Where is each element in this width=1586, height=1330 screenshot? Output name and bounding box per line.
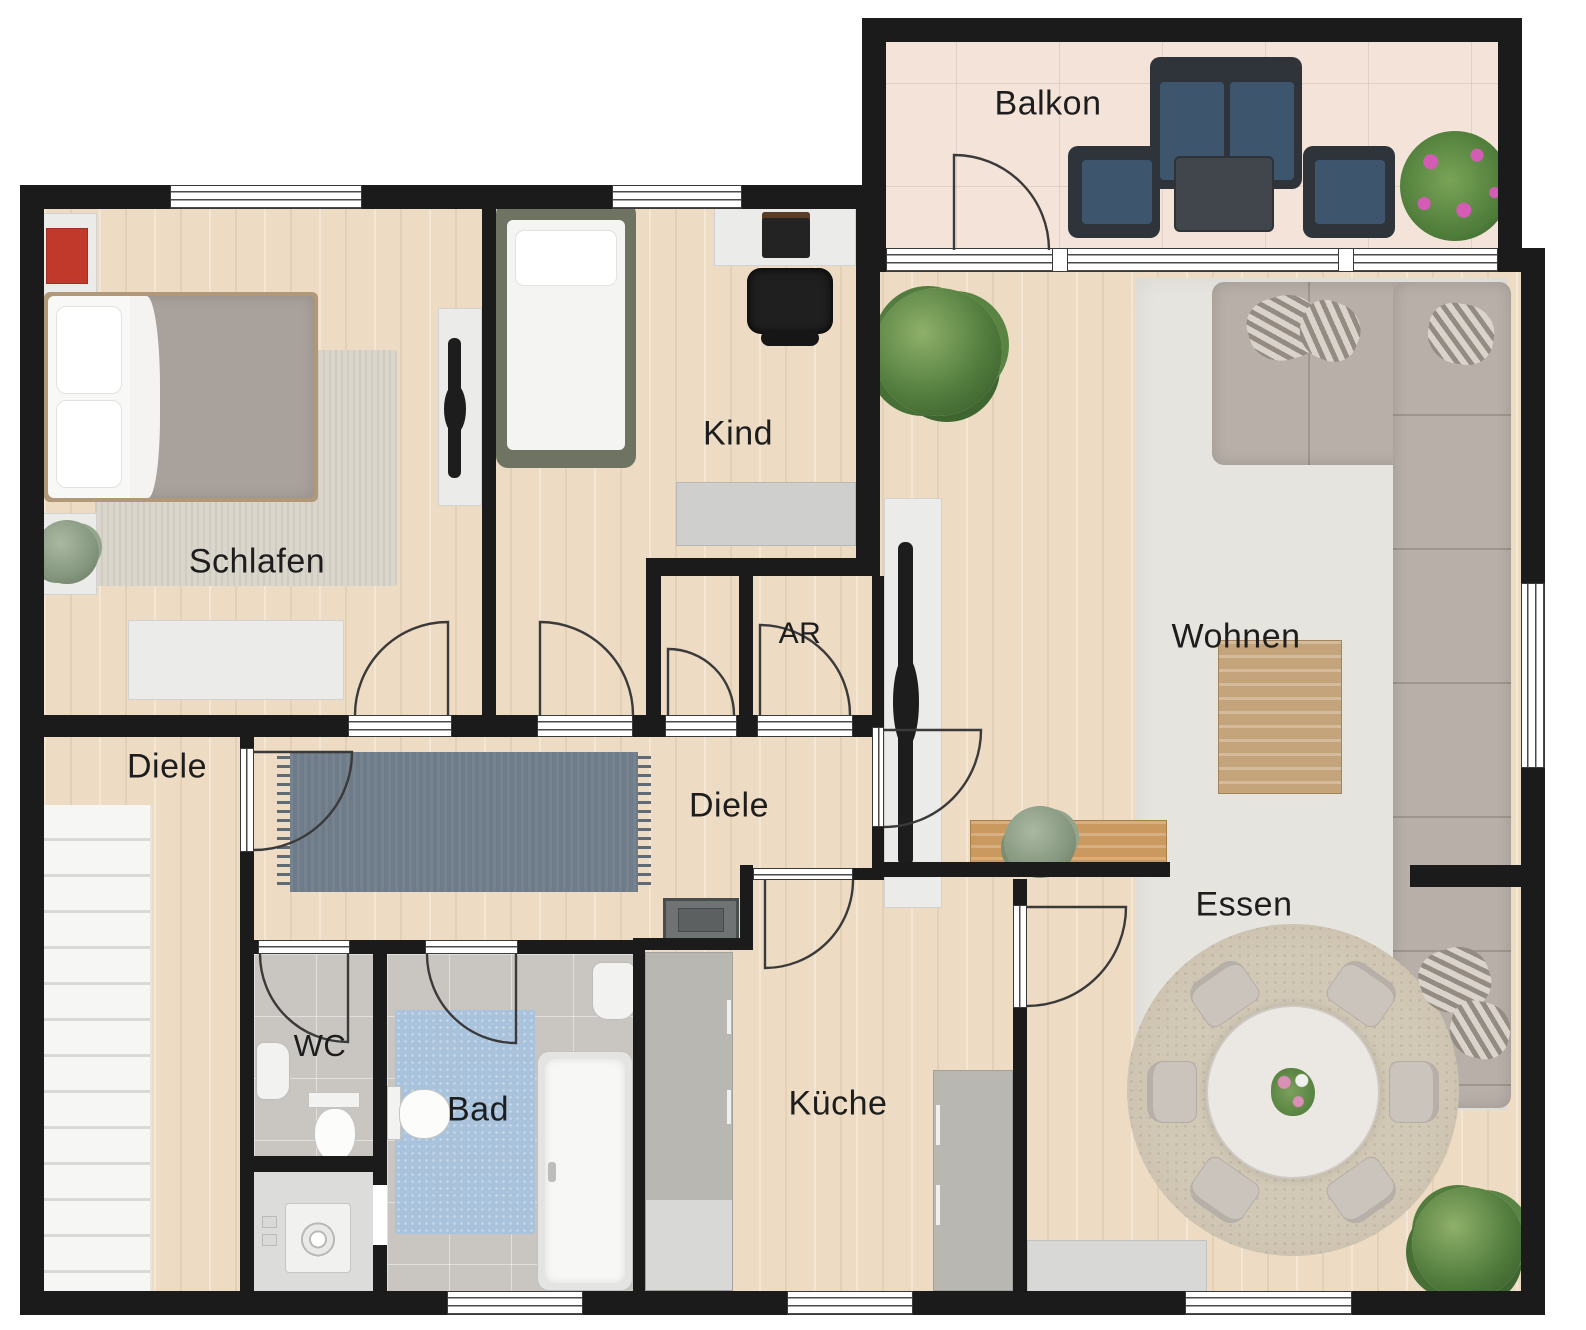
kitchen-appliance-front <box>646 1200 732 1290</box>
wall <box>240 1156 387 1172</box>
laptop-icon <box>762 212 810 258</box>
balcony-chair-cushion <box>1315 160 1385 224</box>
room-label-kueche: Küche <box>789 1085 888 1124</box>
counter-handle <box>936 1185 940 1225</box>
rug-fringe <box>638 756 651 888</box>
hookup-box <box>262 1216 277 1228</box>
room-label-diele-links: Diele <box>127 748 207 787</box>
balcony-chair-cushion <box>1082 160 1152 224</box>
door-frame <box>348 715 452 737</box>
window <box>1521 583 1545 768</box>
wall <box>350 940 425 954</box>
toilet-bowl <box>399 1089 451 1139</box>
wall <box>740 865 753 950</box>
door-opening <box>373 1185 387 1245</box>
wall <box>633 938 645 1291</box>
coffee-table <box>1218 640 1342 794</box>
wall <box>373 1245 387 1291</box>
wall <box>1498 248 1545 272</box>
toilet-bowl <box>314 1108 356 1162</box>
balcony-glass-front <box>886 248 1498 272</box>
glass-front-joint <box>1338 248 1354 272</box>
door-frame <box>240 748 254 852</box>
flower-plant-icon <box>1400 131 1510 241</box>
bed-pillow <box>56 400 122 488</box>
faucet-icon <box>548 1162 556 1182</box>
door-frame <box>258 940 350 954</box>
window <box>1185 1291 1352 1315</box>
room-label-kind: Kind <box>703 415 773 454</box>
kitchen-counter-east <box>933 1070 1013 1291</box>
counter-handle <box>727 1090 731 1124</box>
door-frame <box>425 940 518 954</box>
sink-icon <box>256 1042 290 1100</box>
room-label-wohnen: Wohnen <box>1171 618 1300 657</box>
counter-handle <box>936 1105 940 1145</box>
room-label-ar: AR <box>779 617 822 651</box>
room-label-balkon: Balkon <box>995 85 1102 124</box>
balcony-table <box>1174 156 1274 232</box>
dining-chair <box>1389 1061 1439 1123</box>
room-label-diele: Diele <box>689 787 769 826</box>
wall <box>856 209 880 576</box>
dresser <box>128 620 344 700</box>
washing-machine-icon <box>285 1203 351 1273</box>
room-label-wc: WC <box>294 1028 347 1064</box>
wall <box>44 715 348 737</box>
bed-duvet <box>136 296 314 498</box>
wall <box>873 862 1170 877</box>
bed-pillow <box>56 306 122 394</box>
wall <box>1410 865 1545 887</box>
wall <box>482 209 496 715</box>
toilet-tank <box>308 1092 360 1108</box>
flower-centerpiece <box>1271 1068 1315 1116</box>
wall-balcony <box>862 18 1522 42</box>
wall <box>373 940 387 1185</box>
wall <box>20 185 880 209</box>
red-tray <box>46 228 88 284</box>
office-chair-arm <box>761 330 819 346</box>
room-label-bad: Bad <box>447 1091 509 1130</box>
window <box>612 185 742 209</box>
wall <box>1013 879 1027 905</box>
plant-icon <box>35 520 99 584</box>
door-frame <box>872 727 884 827</box>
wall <box>518 940 645 954</box>
glass-front-joint <box>1052 248 1068 272</box>
office-chair <box>747 268 833 334</box>
plant-icon <box>1412 1187 1524 1299</box>
bathtub-inner <box>545 1059 625 1283</box>
dining-chair <box>1147 1061 1197 1123</box>
wall <box>633 938 753 950</box>
wall <box>452 715 537 737</box>
room-label-essen: Essen <box>1196 886 1293 925</box>
door-frame <box>757 715 853 737</box>
door-frame <box>665 715 737 737</box>
sink-icon <box>592 962 636 1020</box>
wall <box>1013 1008 1027 1291</box>
door-frame <box>1013 905 1027 1008</box>
plant-icon <box>874 288 1002 416</box>
window <box>787 1291 913 1315</box>
dining-sideboard <box>1027 1240 1207 1292</box>
wall <box>646 558 872 576</box>
hookup-box <box>262 1234 277 1246</box>
kids-sideboard <box>676 482 856 546</box>
rug-fringe <box>277 756 290 888</box>
tv-icon <box>893 656 919 748</box>
wall <box>240 940 258 954</box>
floor-plan: Balkon Schlafen Kind AR Diele Diele Wohn… <box>0 0 1586 1330</box>
bed-sheet-fold <box>130 296 160 498</box>
hallway-rug <box>290 752 638 892</box>
wall <box>20 185 44 1315</box>
wall <box>646 558 661 737</box>
room-label-schlafen: Schlafen <box>189 543 325 582</box>
wall <box>739 558 753 737</box>
door-frame <box>537 715 633 737</box>
window <box>170 185 362 209</box>
shoe-cabinet-inner <box>678 908 724 932</box>
wall-balcony <box>1498 18 1522 248</box>
kids-bed-pillow <box>515 230 617 286</box>
tv-icon <box>444 384 466 434</box>
counter-handle <box>727 1000 731 1034</box>
staircase <box>44 805 152 1291</box>
window <box>447 1291 583 1315</box>
wall <box>1521 248 1545 1315</box>
door-frame <box>753 868 853 880</box>
